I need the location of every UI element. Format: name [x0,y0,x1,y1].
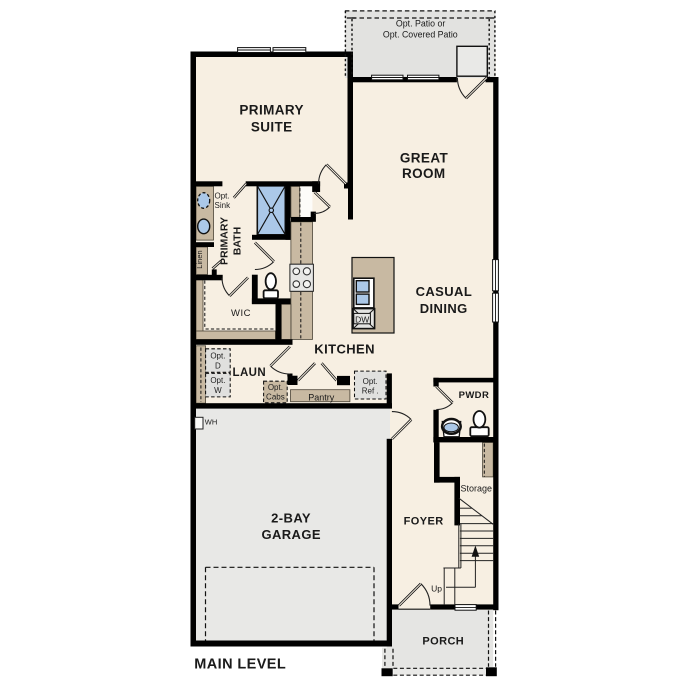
svg-text:Ref .: Ref . [362,387,379,396]
svg-text:WIC: WIC [231,308,251,319]
svg-text:Opt.: Opt. [215,192,230,201]
svg-text:Opt. Covered Patio: Opt. Covered Patio [383,29,458,39]
svg-text:ROOM: ROOM [402,166,446,181]
svg-text:Opt.: Opt. [268,383,283,392]
svg-text:KITCHEN: KITCHEN [314,341,375,356]
svg-text:D: D [215,362,221,371]
svg-text:SUITE: SUITE [251,119,293,134]
svg-text:MAIN LEVEL: MAIN LEVEL [194,657,286,673]
svg-text:Opt.: Opt. [210,352,225,361]
svg-text:GREAT: GREAT [400,151,449,166]
svg-text:WH: WH [205,418,218,427]
svg-text:W: W [214,386,222,395]
svg-text:DINING: DINING [420,301,468,316]
svg-text:Linen: Linen [195,250,204,268]
svg-text:Opt.: Opt. [363,377,378,386]
svg-text:Pantry: Pantry [308,393,335,403]
svg-text:PRIMARY: PRIMARY [218,217,230,265]
svg-text:Storage: Storage [461,483,493,493]
svg-text:LAUN: LAUN [233,367,267,379]
svg-text:PORCH: PORCH [422,636,464,648]
svg-text:Cabs: Cabs [266,393,285,402]
svg-text:Up: Up [431,584,442,594]
svg-text:PWDR: PWDR [459,390,490,401]
svg-text:GARAGE: GARAGE [261,527,320,542]
svg-text:BATH: BATH [231,227,243,255]
svg-text:PRIMARY: PRIMARY [239,102,304,117]
svg-text:Sink: Sink [215,201,232,210]
svg-text:FOYER: FOYER [404,516,444,528]
svg-text:Opt. Patio or: Opt. Patio or [396,19,445,29]
svg-text:Opt.: Opt. [210,376,225,385]
svg-text:2-BAY: 2-BAY [271,511,311,526]
svg-text:DW: DW [355,314,369,324]
svg-text:CASUAL: CASUAL [416,284,473,299]
